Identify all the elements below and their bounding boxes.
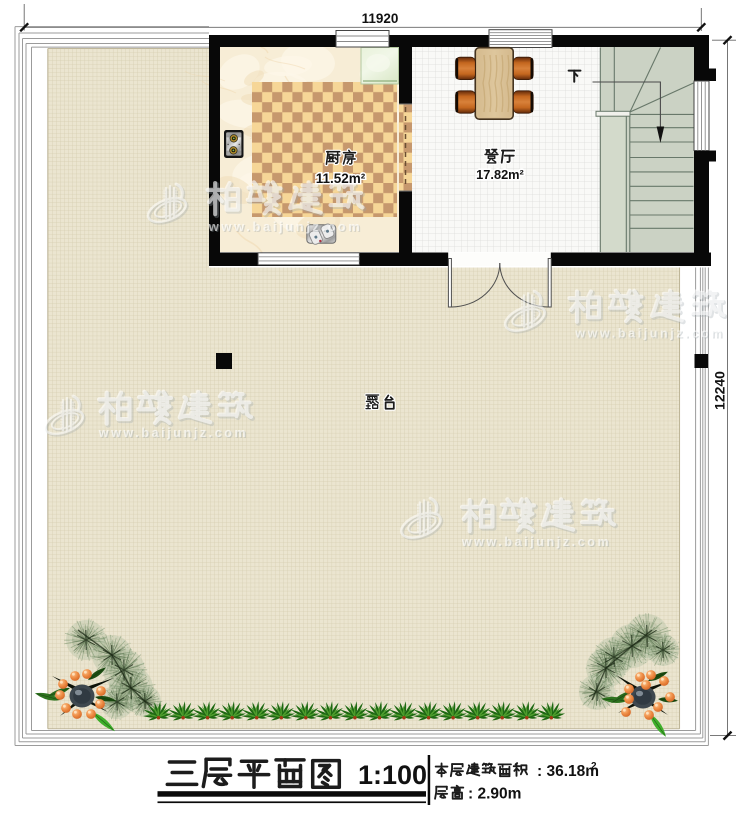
- svg-text:2: 2: [591, 761, 597, 772]
- svg-text:12240: 12240: [712, 371, 728, 410]
- svg-text:11.52m²: 11.52m²: [316, 171, 366, 186]
- svg-text:: 36.18m: : 36.18m: [537, 763, 599, 780]
- svg-text:www.baijunjz.com: www.baijunjz.com: [98, 426, 248, 440]
- svg-text:www.baijunjz.com: www.baijunjz.com: [461, 535, 611, 549]
- svg-text:17.82m²: 17.82m²: [476, 167, 524, 182]
- svg-text:: 2.90m: : 2.90m: [468, 786, 521, 803]
- svg-text:www.baijunjz.com: www.baijunjz.com: [208, 219, 363, 234]
- svg-text:www.baijunjz.com: www.baijunjz.com: [574, 327, 724, 341]
- svg-text:1:100: 1:100: [358, 760, 427, 790]
- svg-text:11920: 11920: [362, 11, 399, 26]
